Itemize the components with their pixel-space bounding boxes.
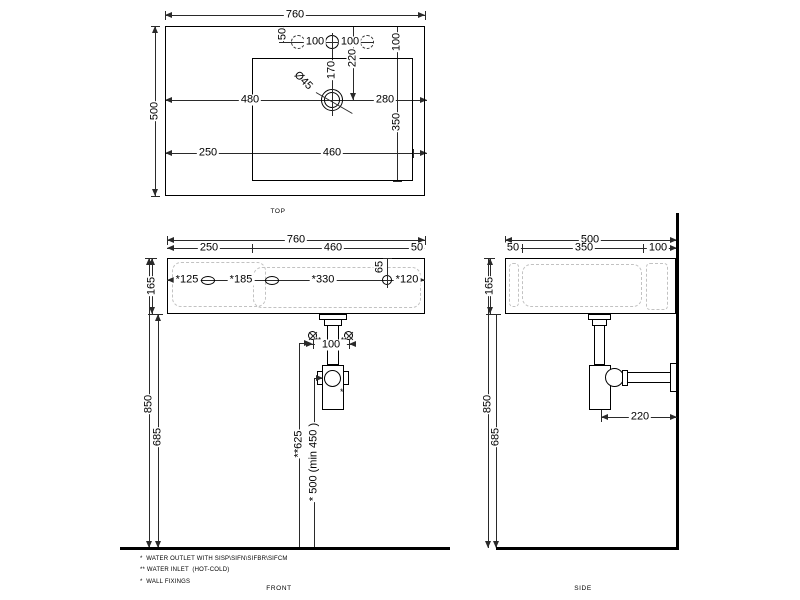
dim-arrow — [670, 414, 677, 420]
side-dim-seg-front: 50 — [505, 243, 521, 254]
side-wall-pipe — [627, 372, 671, 383]
drain-crosshair — [332, 84, 333, 116]
front-dim-seg-mid: 460 — [322, 243, 344, 254]
dim-arrow — [485, 541, 491, 548]
front-dim-fix3: *330 — [310, 275, 337, 286]
wall-fixing-slot-mid-icon — [265, 276, 279, 285]
dim-arrow — [304, 340, 311, 346]
side-dim-trap-to-wall: 220 — [629, 412, 651, 423]
dim-arrow — [316, 375, 323, 381]
front-dim-fix1: *125 — [174, 275, 201, 286]
top-dim-depth: 500 — [149, 101, 162, 121]
tap-hole-crosshair — [332, 33, 333, 53]
top-dim-width: 760 — [284, 10, 306, 21]
dim-tick — [313, 340, 314, 349]
side-hidden-front-lip — [509, 263, 519, 307]
dim-arrow — [152, 189, 158, 196]
dim-tick — [492, 314, 501, 315]
dim-arrow — [349, 341, 356, 347]
dim-tick — [151, 196, 160, 197]
top-dim-tap-offset: 50 — [277, 27, 290, 41]
front-dim-floor-to-outlet: * 500 (min 450 ) — [308, 422, 321, 502]
dim-tick — [425, 11, 426, 20]
side-view-caption: SIDE — [574, 585, 592, 592]
front-trap-outlet-icon — [324, 370, 341, 387]
front-dim-width: 760 — [285, 235, 307, 246]
front-dim-floor-to-rim: 850 — [143, 394, 156, 414]
front-dim-height: 165 — [146, 276, 159, 296]
front-dim-floor-to-inlet: **625 — [293, 430, 306, 459]
front-dim-floor-to-bottom: 685 — [152, 427, 165, 447]
dim-arrow — [418, 12, 425, 18]
side-dim-floor-to-rim: 850 — [482, 394, 495, 414]
top-dim-front-to-drain: 220 — [347, 48, 360, 68]
front-dim-fix-drop: 65 — [374, 260, 387, 274]
dim-arrow — [167, 245, 174, 251]
front-floor-line — [120, 547, 450, 550]
side-dim-height: 165 — [484, 276, 497, 296]
note-wall-fixings: * WALL FIXINGS — [140, 579, 190, 585]
tap-hole-optional-right-icon — [360, 35, 374, 49]
dim-arrow — [165, 12, 172, 18]
side-dim-seg-mid: 350 — [573, 243, 595, 254]
top-dim-bowl-depth: 350 — [391, 112, 404, 132]
top-dim-tap-to-drain: 170 — [326, 60, 339, 80]
front-view-caption: FRONT — [266, 585, 291, 592]
top-dim-bowl-offset-left: 250 — [197, 148, 219, 159]
dim-arrow — [146, 258, 152, 265]
outlet-asterisk-mark: * — [340, 388, 344, 397]
side-hidden-rear-channel — [646, 263, 668, 310]
note-water-outlet: * WATER OUTLET WITH SISP\SIFN\SIFBR\SIFC… — [140, 556, 288, 562]
dim-arrow — [152, 26, 158, 33]
dim-arrow — [601, 414, 608, 420]
dim-tick — [484, 258, 493, 259]
front-dim-fix4: *120 — [394, 275, 421, 286]
dim-tick — [643, 244, 644, 253]
front-dim-seg-left: 250 — [198, 243, 220, 254]
wall-fixing-hole-crosshair — [387, 272, 388, 288]
side-floor-line — [496, 547, 679, 550]
top-dim-tap-pitch-right: 100 — [339, 37, 361, 48]
side-wall-flange — [670, 363, 677, 392]
top-dim-rear-deck: 100 — [391, 32, 404, 52]
technical-drawing-washbasin: 760 500 50 100 100 100 220 170 Ø45 480 2… — [0, 0, 800, 600]
front-dim-fix2: *185 — [228, 275, 255, 286]
side-dim-floor-to-bottom: 685 — [490, 427, 503, 447]
front-dim-inlet-pitch: 100 — [320, 340, 342, 351]
note-water-inlet: ** WATER INLET (HOT-COLD) — [140, 567, 229, 573]
top-dim-drain-from-right: 280 — [374, 95, 396, 106]
side-hidden-bowl — [522, 264, 642, 307]
dim-arrow — [155, 314, 161, 321]
dim-tick — [522, 244, 523, 253]
front-dim-seg-right: 50 — [409, 243, 425, 254]
front-dim-line-fix-drop — [387, 258, 388, 272]
top-dim-drain-from-left: 480 — [239, 95, 261, 106]
dim-arrow — [167, 237, 174, 243]
side-dim-seg-rear: 100 — [647, 243, 669, 254]
top-dim-tap-pitch-left: 100 — [304, 37, 326, 48]
top-view-caption: TOP — [270, 208, 285, 215]
top-dim-bowl-width: 460 — [321, 148, 343, 159]
side-tailpipe — [594, 325, 605, 365]
dim-tick — [383, 258, 392, 259]
wall-fixing-slot-left-icon — [201, 276, 215, 285]
dim-tick — [252, 244, 253, 253]
dim-tick — [425, 236, 426, 245]
